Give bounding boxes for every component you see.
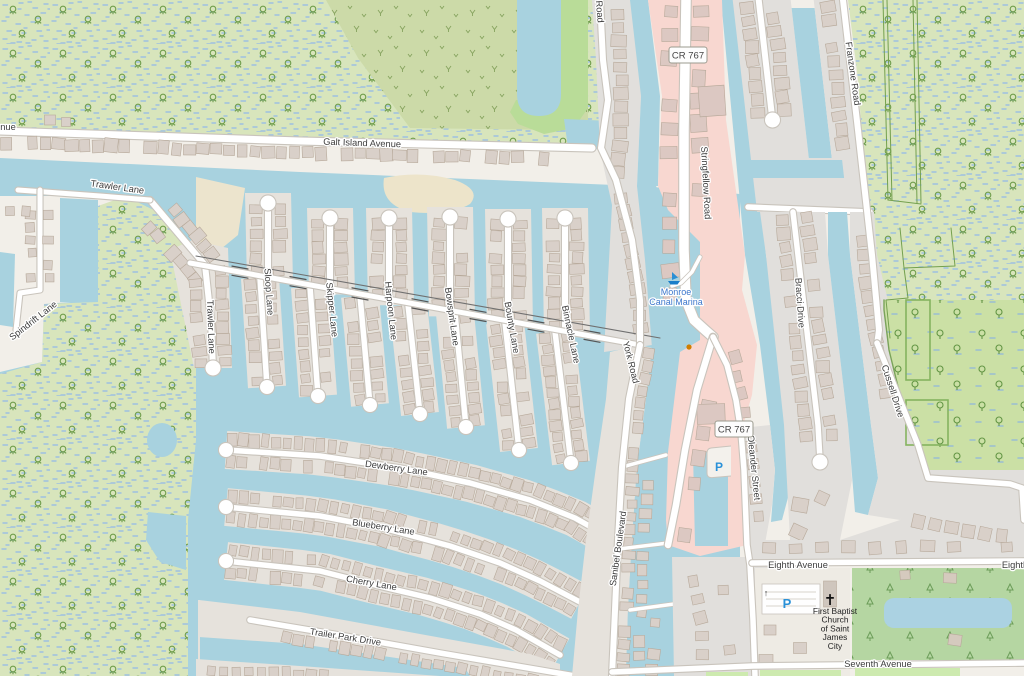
svg-text:Eighth Avenue: Eighth Avenue: [768, 560, 828, 570]
svg-text:Canal Marina: Canal Marina: [649, 297, 703, 307]
svg-text:City: City: [828, 641, 843, 651]
svg-text:Seventh Avenue: Seventh Avenue: [844, 659, 912, 669]
svg-text:Monroe: Monroe: [661, 287, 692, 297]
svg-text:CR 767: CR 767: [672, 51, 704, 62]
svg-text:CR 767: CR 767: [718, 425, 750, 436]
svg-text:P: P: [783, 596, 792, 611]
svg-text:Eighth: Eighth: [1002, 560, 1024, 570]
svg-text:Trawler Lane: Trawler Lane: [205, 300, 217, 354]
svg-text:↑: ↑: [764, 588, 769, 598]
svg-text:P: P: [715, 460, 723, 474]
svg-text:nue: nue: [0, 122, 16, 132]
